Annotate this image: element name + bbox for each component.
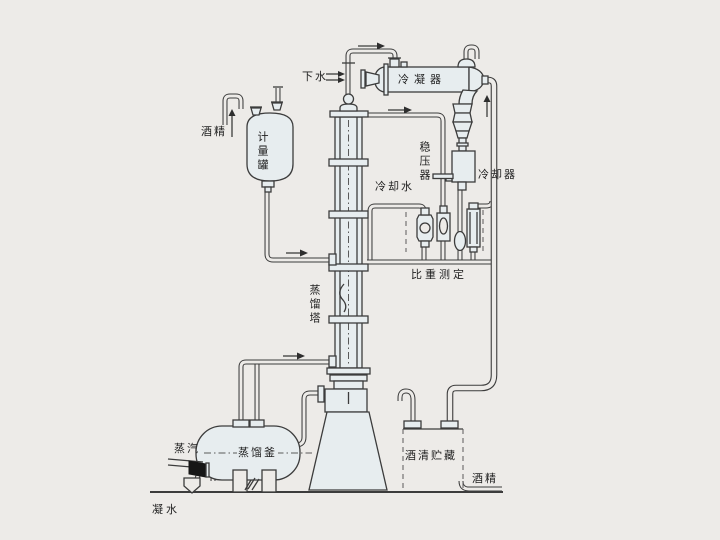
column-skirt-cone (309, 412, 387, 490)
label-cooling-water: 冷却水 (375, 180, 414, 193)
kettle-support-right (262, 470, 276, 492)
pipe-base-return (296, 393, 320, 445)
label-metering-tank: 计量罐 (256, 131, 269, 173)
cooler-box (452, 151, 475, 182)
label-cooler: 冷却器 (478, 168, 517, 181)
downwater-flange (361, 70, 365, 88)
condenser-nozzle-top (390, 59, 399, 67)
condenser-left-flange (384, 64, 388, 95)
arrow-downwater-1 (338, 71, 345, 77)
process-diagram (0, 0, 720, 540)
column-flange-2 (329, 211, 368, 218)
column-base-neck (334, 381, 363, 389)
pipe-feed-upper (267, 190, 338, 260)
cooler-assembly (433, 90, 477, 190)
head-bottom-elbow (459, 90, 477, 104)
pipe-cooling-loop (370, 206, 424, 262)
pipe-feed-u (225, 96, 241, 125)
label-alcohol-feed: 酒精 (201, 125, 227, 138)
column-top-plate (330, 111, 368, 117)
gravity-tube-body (467, 209, 480, 247)
label-condensate: 凝水 (152, 503, 180, 516)
label-condenser: 冷凝器 (398, 73, 446, 86)
label-distillation-kettle: 蒸馏釜 (237, 446, 278, 459)
downwater-taper (366, 72, 379, 86)
arrow-downwater-2 (338, 77, 345, 83)
arrow-kettle-vapor (297, 353, 305, 360)
metering-tank-body (247, 113, 293, 181)
column-base-cylinder (325, 389, 367, 412)
label-steam: 蒸汽 (174, 442, 200, 455)
column-bottom-flange-b (330, 375, 367, 381)
label-alcohol-storage: 酒清贮藏 (405, 449, 457, 462)
stabilizer-flange (433, 174, 453, 179)
base-nozzle-flange (318, 386, 324, 402)
label-drain-water: 下水 (302, 70, 328, 83)
trap-bulb (455, 232, 466, 251)
cooler-bottom-stub (458, 182, 466, 190)
label-gravity-measurement: 比重测定 (411, 268, 467, 281)
column-flange-1 (329, 159, 368, 166)
kettle-support-left (233, 470, 247, 492)
steam-valve (189, 461, 206, 477)
column-bottom-flange-a (327, 368, 370, 374)
condenser-vent-dome (458, 59, 475, 67)
steam-trap (184, 478, 200, 493)
arrow-top-right (377, 43, 385, 50)
label-alcohol-out: 酒精 (472, 472, 498, 485)
condenser-right-stub (482, 76, 488, 84)
arrow-feed-upper (300, 250, 308, 257)
steam-inlet-assembly (168, 459, 209, 493)
diagram-canvas: 下水 冷凝器 酒精 计量罐 稳压器 冷却水 冷却器 比重测定 蒸馏塔 蒸汽 蒸馏… (0, 0, 720, 540)
pipe-stabilizer-line (368, 115, 443, 208)
label-distillation-column: 蒸馏塔 (308, 284, 321, 326)
condenser-nozzle-small (401, 62, 407, 67)
metering-tank-vessel (247, 87, 293, 192)
arrow-stabilizer-line (404, 107, 412, 114)
arrow-riser-up (484, 95, 491, 102)
column-ball (344, 94, 354, 104)
column-dome (340, 104, 357, 111)
column-flange-4 (329, 316, 368, 323)
arrow-alcohol-feed-up (229, 109, 236, 116)
label-pressure-stabilizer: 稳压器 (418, 141, 431, 183)
